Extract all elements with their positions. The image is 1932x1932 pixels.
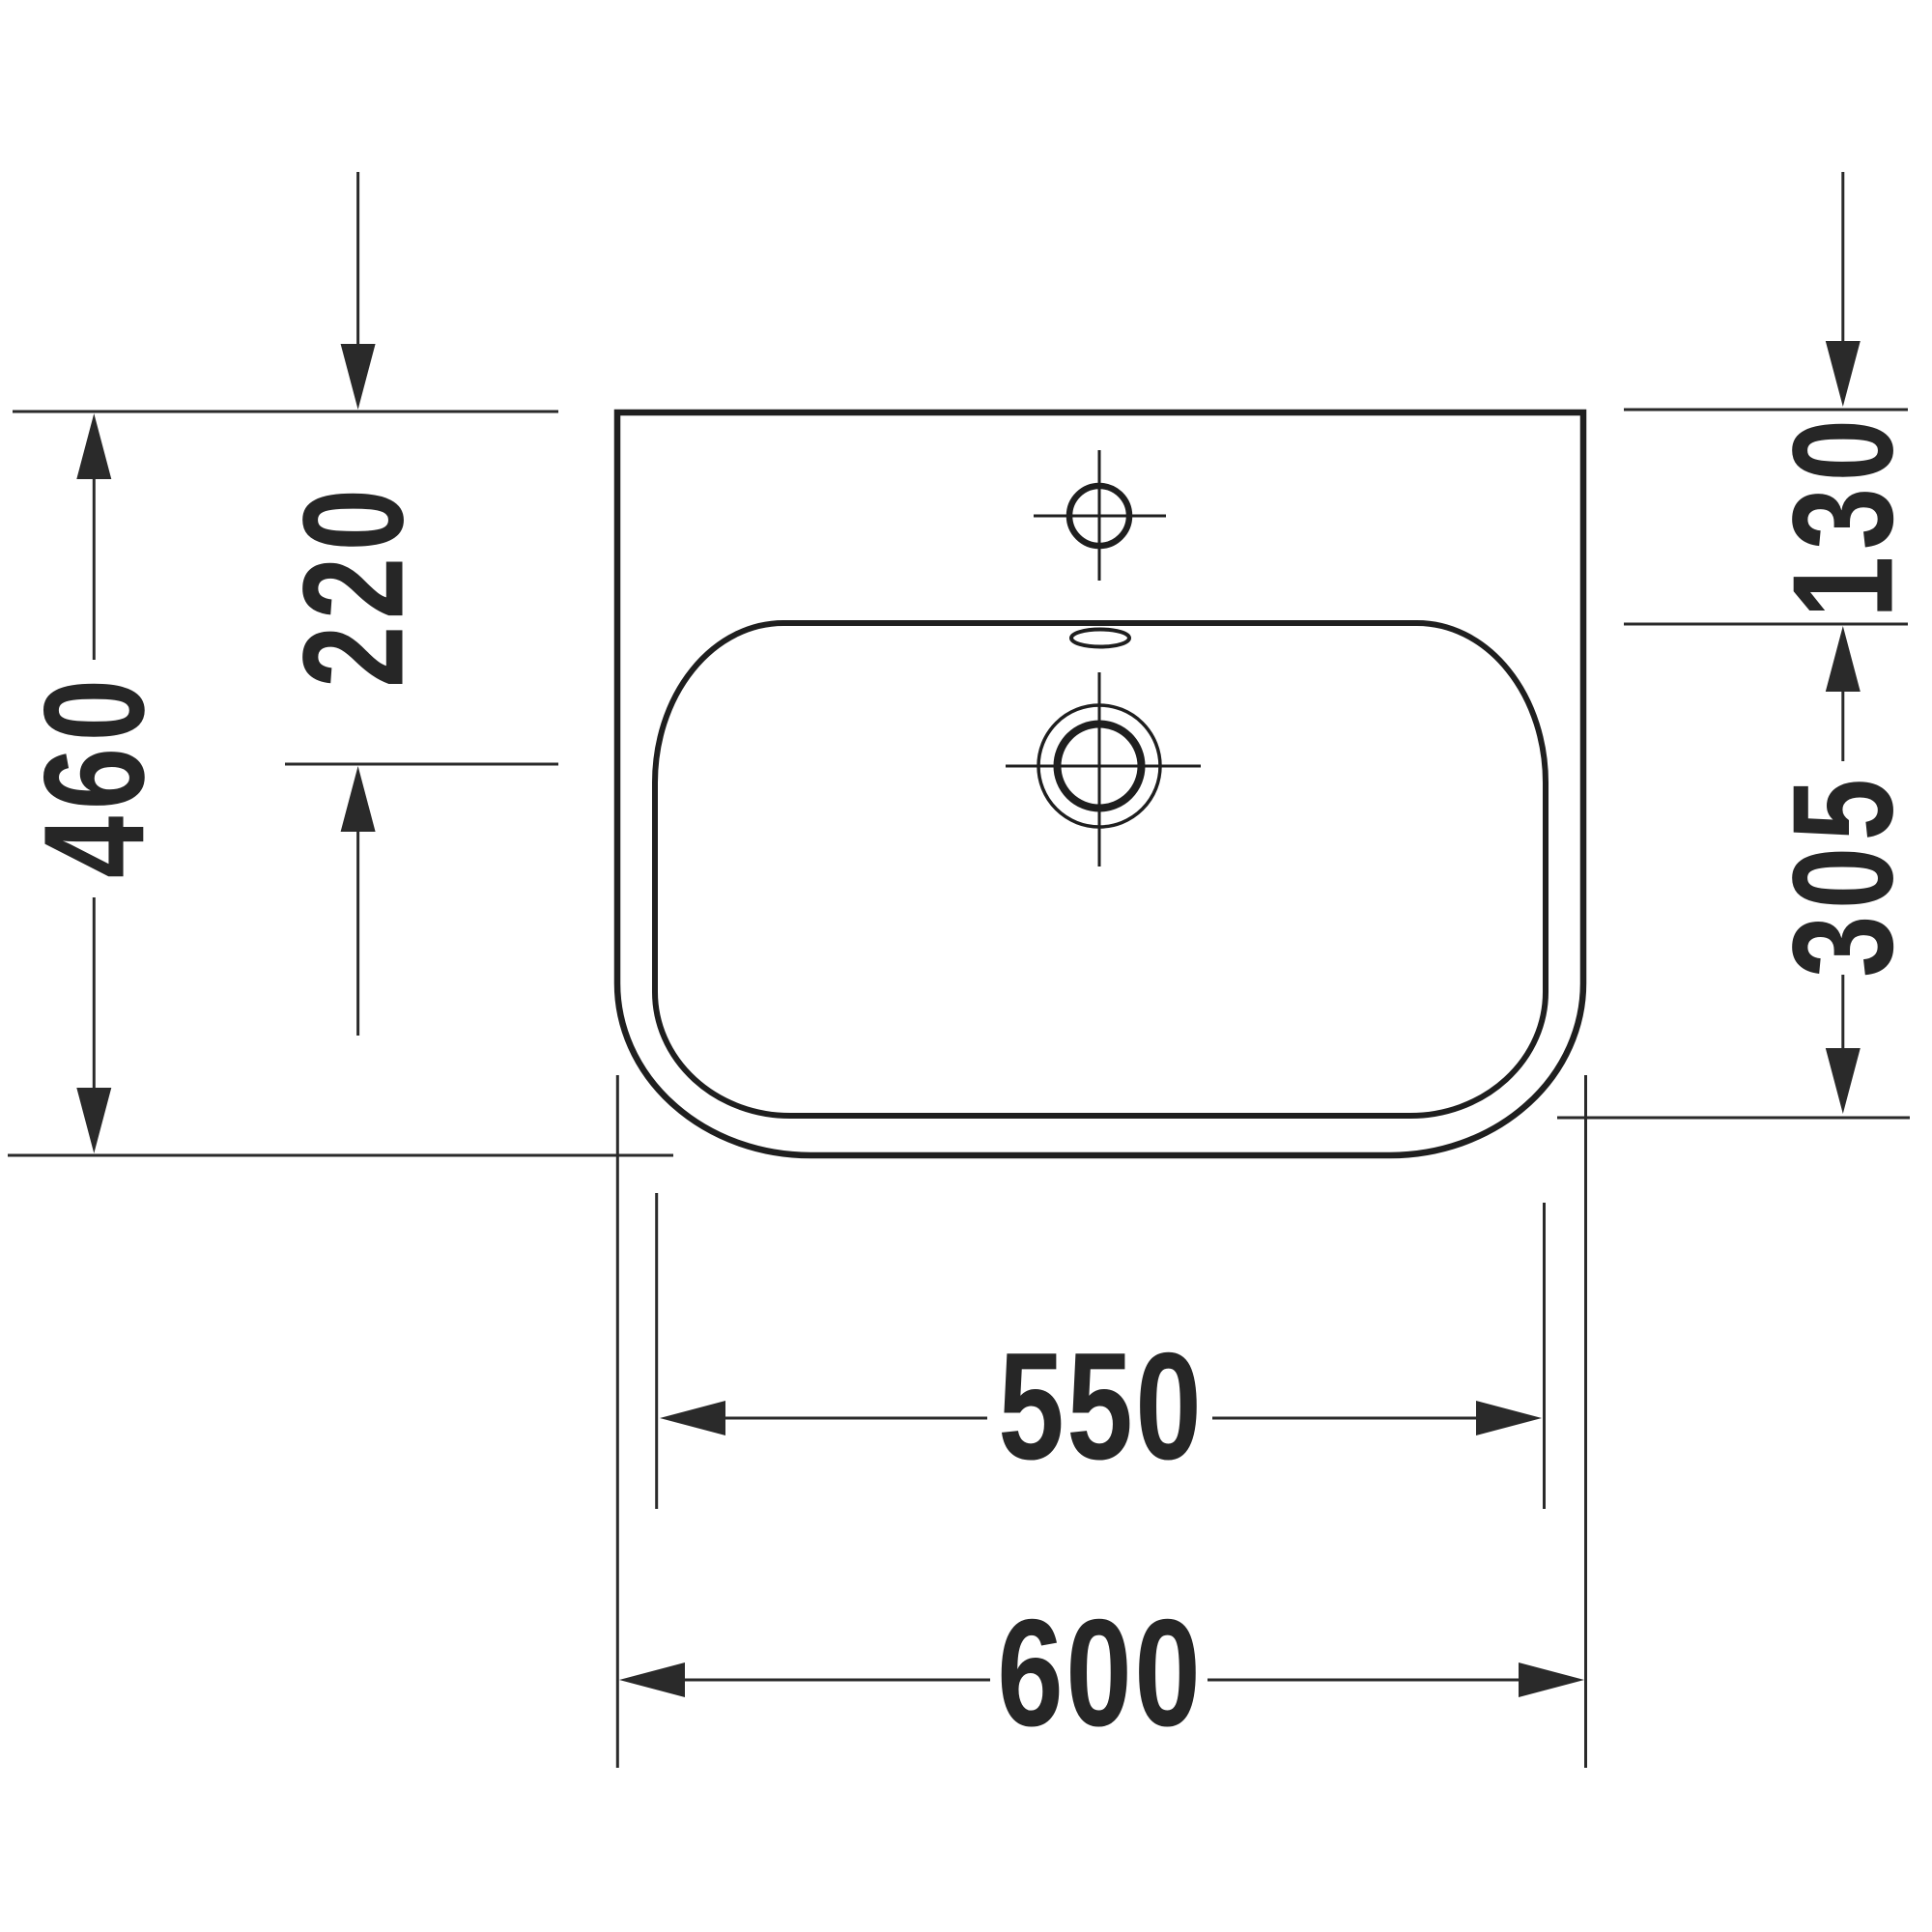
svg-text:305: 305	[1764, 779, 1923, 978]
svg-text:220: 220	[274, 489, 434, 688]
svg-text:550: 550	[998, 1321, 1202, 1492]
svg-text:460: 460	[15, 679, 175, 878]
svg-text:130: 130	[1764, 419, 1923, 618]
svg-text:600: 600	[997, 1588, 1201, 1758]
